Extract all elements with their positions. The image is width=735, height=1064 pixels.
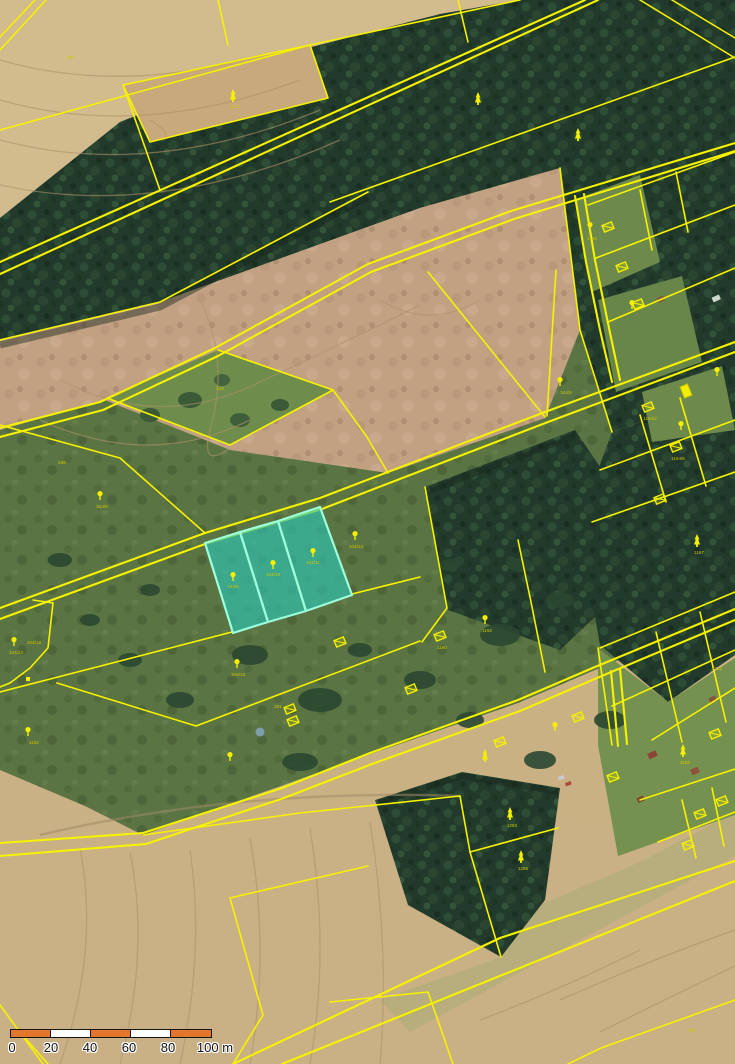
parcel-number-label: 1162	[482, 628, 492, 633]
scale-tick-label: 0	[8, 1040, 15, 1055]
scale-bar-segment	[11, 1030, 51, 1037]
aerial-terrain	[0, 0, 735, 1064]
parcel-number-label: 1283	[507, 823, 518, 828]
scale-bar-segment	[171, 1030, 211, 1037]
scale-tick-label: 20	[44, 1040, 58, 1055]
parcel-number-label: 1252	[712, 666, 723, 671]
scale-bar-segments	[10, 1029, 212, 1038]
parcel-number-label: 1285	[518, 866, 529, 871]
cadastral-map-canvas[interactable]: 344/9344/10344/11344/12344/8344/16344/22…	[0, 0, 735, 1064]
scale-tick-label: 60	[122, 1040, 136, 1055]
map-viewport[interactable]: 344/9344/10344/11344/12344/8344/16344/22…	[0, 0, 735, 1064]
parcel-number-label: 636	[58, 460, 66, 465]
parcel-number-label: 1160	[437, 645, 447, 650]
parcel-number-label: 1147	[230, 104, 240, 109]
scale-bar-segment	[91, 1030, 131, 1037]
parcel-number-label: 344/13	[231, 672, 245, 677]
parcel-number-label: 344/22	[9, 650, 23, 655]
parcel-number-label: 1182	[587, 236, 597, 241]
parcel-number-label: 1192	[29, 740, 39, 745]
parcel-number-label: 1167	[694, 550, 704, 555]
parcel-number-label: 344/12	[349, 544, 363, 549]
scale-tick-label: 40	[83, 1040, 97, 1055]
parcel-number-label: 930	[66, 55, 74, 60]
parcel-number-label: 1164/6	[671, 456, 685, 461]
parcel-number-label: 344/16	[27, 640, 41, 645]
parcel-number-label: 344/10	[266, 572, 280, 577]
marker-symbol	[26, 677, 30, 681]
scale-tick-label: 100 m	[197, 1040, 233, 1055]
parcel-number-label: 1163	[680, 760, 690, 765]
parcel-number-label: 344/11	[306, 560, 320, 565]
parcel-number-label: 343	[216, 386, 224, 391]
parcel-number-label: 687	[688, 1028, 696, 1033]
parcel-number-label: 344/5	[560, 390, 572, 395]
scale-bar: 020406080100 m	[10, 1029, 250, 1063]
parcel-number-label: 301	[274, 704, 282, 709]
scale-tick-label: 80	[161, 1040, 175, 1055]
scale-bar-segment	[131, 1030, 171, 1037]
parcel-number-label: 344/9	[227, 584, 239, 589]
parcel-number-label: 1164/2	[643, 416, 657, 421]
scale-bar-segment	[51, 1030, 91, 1037]
parcel-number-label: 344/8	[96, 504, 108, 509]
